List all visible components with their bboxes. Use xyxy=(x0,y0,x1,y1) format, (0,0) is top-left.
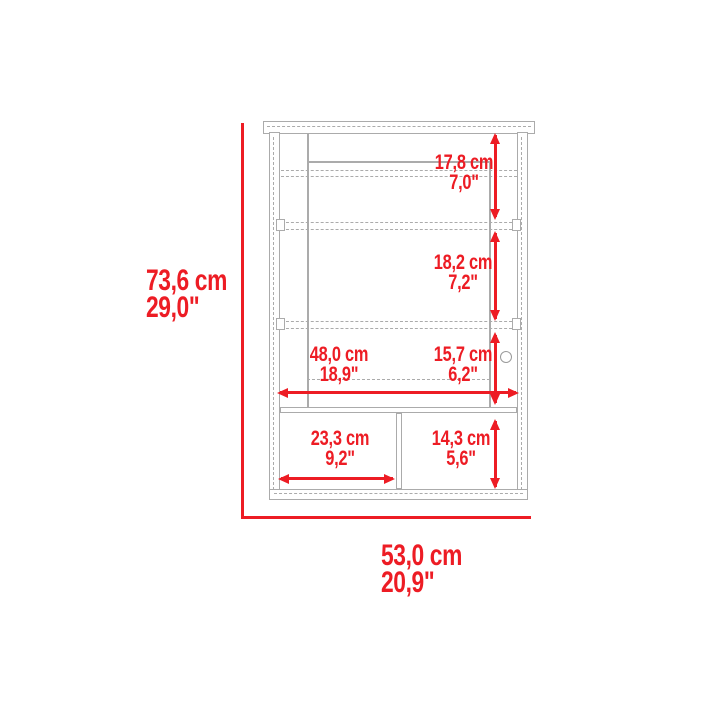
shelf-left-width-label: 23,3 cm 9,2" xyxy=(282,429,399,468)
shelf-cleat-mid-right xyxy=(512,219,521,231)
overall-width-in: 20,9" xyxy=(381,566,434,599)
shelf-line-low-a xyxy=(281,321,517,322)
shelf-line-mid-a xyxy=(281,222,517,223)
shelf-width-arrow xyxy=(281,477,393,480)
lower-section-label: 15,7 cm 6,2" xyxy=(405,345,522,384)
middle-section-in: 7,2" xyxy=(448,271,478,294)
shelf-cleat-mid-left xyxy=(276,219,285,231)
shelf-left-width-in: 9,2" xyxy=(325,447,355,470)
overall-height-label: 73,6 cm 29,0" xyxy=(146,267,227,321)
overall-width-label: 53,0 cm 20,9" xyxy=(381,542,462,596)
arrow-head-icon xyxy=(384,474,395,484)
shelf-line-low-b xyxy=(281,328,517,329)
arrow-head-icon xyxy=(508,388,519,398)
interior-width-arrow xyxy=(280,391,516,394)
left-side-panel-dash xyxy=(273,137,274,495)
bottom-panel xyxy=(269,489,528,500)
arrow-head-icon xyxy=(490,310,500,321)
bottom-panel-dash xyxy=(274,493,523,494)
overall-width-dim-line xyxy=(241,516,531,519)
top-panel-dash xyxy=(267,126,531,127)
overall-height-dim-line xyxy=(241,123,244,519)
interior-width-label: 48,0 cm 18,9" xyxy=(281,345,398,384)
arrow-head-icon xyxy=(278,474,289,484)
cabinet-dimension-diagram: 73,6 cm 29,0" 53,0 cm 20,9" 17,8 cm 7,0"… xyxy=(0,0,720,720)
arrow-head-icon xyxy=(490,231,500,242)
arrow-head-icon xyxy=(277,388,288,398)
left-side-panel xyxy=(269,132,280,500)
top-section-in: 7,0" xyxy=(449,171,479,194)
arrow-head-icon xyxy=(490,332,500,343)
interior-width-in: 18,9" xyxy=(320,363,358,386)
shelf-right-height-label: 14,3 cm 5,6" xyxy=(403,429,520,468)
top-section-label: 17,8 cm 7,0" xyxy=(406,153,523,192)
shelf-line-mid-b xyxy=(281,229,517,230)
lower-section-in: 6,2" xyxy=(448,363,478,386)
shelf-right-height-in: 5,6" xyxy=(446,447,476,470)
middle-section-label: 18,2 cm 7,2" xyxy=(405,253,522,292)
shelf-cleat-low-left xyxy=(276,318,285,330)
shelf-cleat-low-right xyxy=(512,318,521,330)
arrow-head-icon xyxy=(490,478,500,489)
arrow-head-icon xyxy=(490,394,500,405)
arrow-head-icon xyxy=(490,133,500,144)
overall-height-in: 29,0" xyxy=(146,291,199,324)
arrow-head-icon xyxy=(490,209,500,220)
